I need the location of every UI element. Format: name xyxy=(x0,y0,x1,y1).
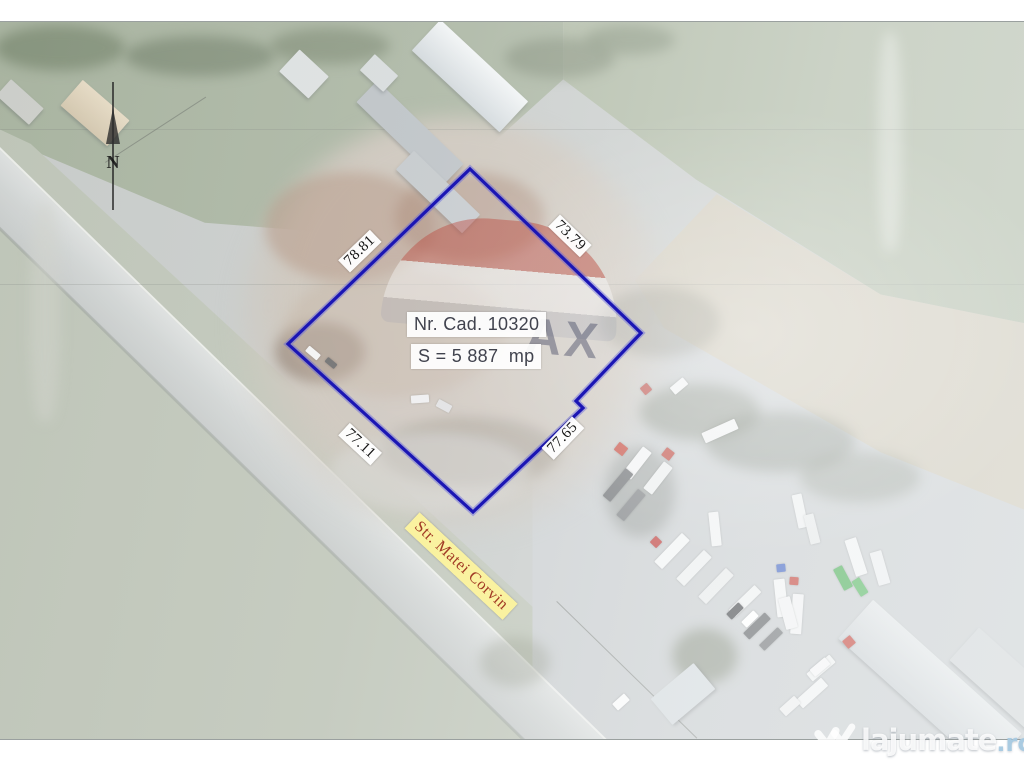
site-watermark-name: lajumate xyxy=(861,723,996,757)
north-arrow: N xyxy=(100,82,128,210)
north-arrow-head xyxy=(106,108,120,144)
north-label: N xyxy=(100,152,126,173)
site-watermark-tld: .ro xyxy=(996,729,1024,757)
aerial-photo: AX 78.81 73.79 77.11 77.65 Nr. Cad. 1032… xyxy=(0,21,1024,740)
parcel-area-label: S = 5 887 mp xyxy=(411,344,541,369)
cadastral-number-label: Nr. Cad. 10320 xyxy=(407,312,546,337)
listing-photo-page: AX 78.81 73.79 77.11 77.65 Nr. Cad. 1032… xyxy=(0,0,1024,768)
site-watermark: lajumate .ro xyxy=(812,718,1024,762)
site-logo-icon xyxy=(812,720,858,760)
north-arrow-stem xyxy=(112,82,114,210)
